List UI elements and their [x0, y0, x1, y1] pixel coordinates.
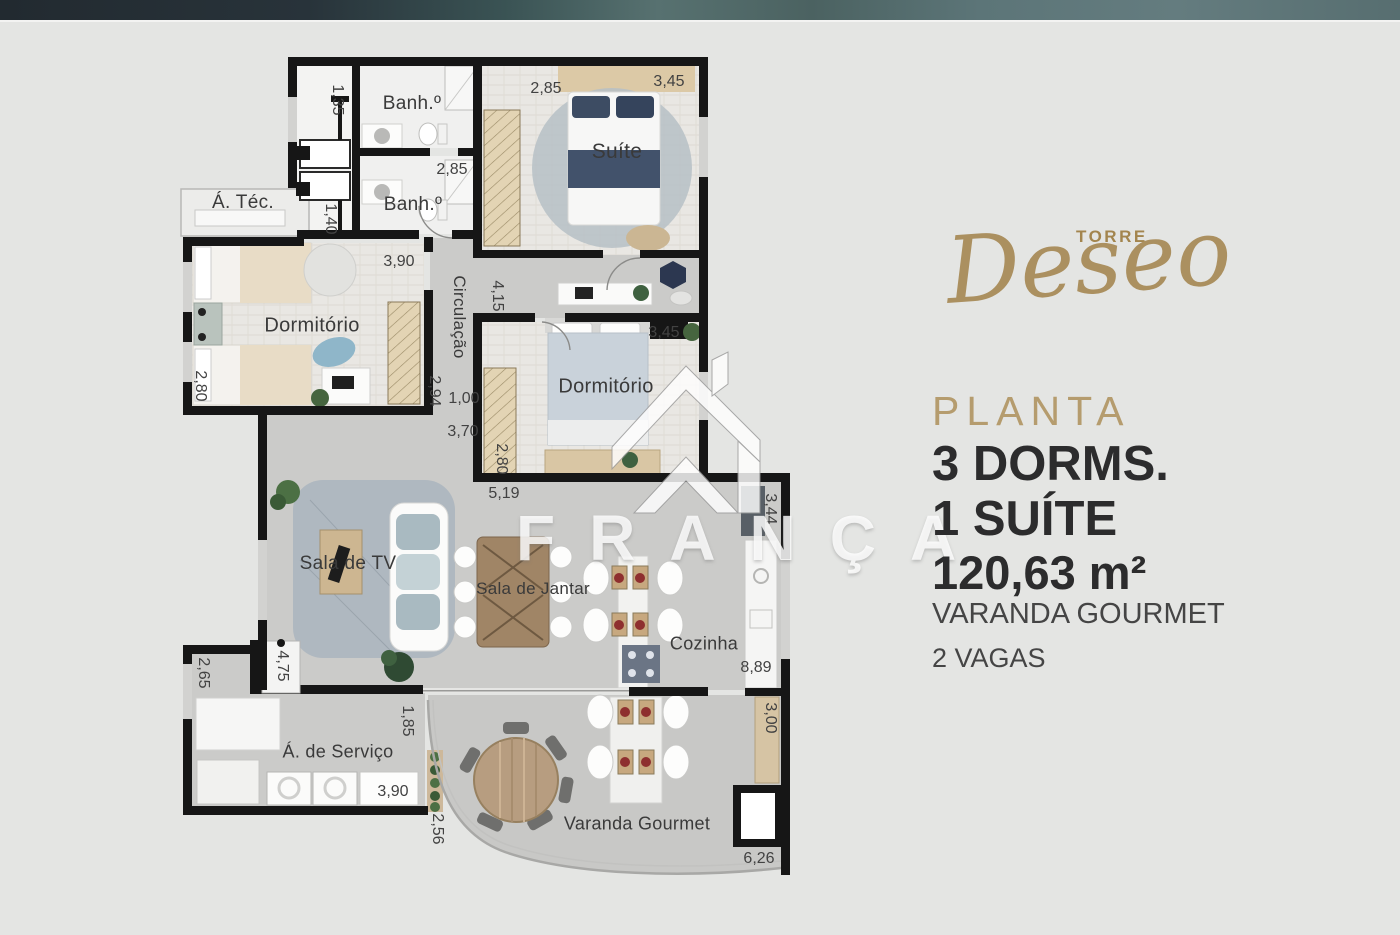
- spec-suite: 1 SUÍTE: [932, 491, 1117, 547]
- laundry-cabinet: [197, 760, 259, 804]
- spec-area: 120,63 m²: [932, 545, 1146, 600]
- dorm1-nightstand: [194, 303, 222, 345]
- dorm1-rug: [304, 244, 356, 296]
- watermark-text: FRANÇA: [516, 501, 990, 575]
- suite-headboard: [558, 62, 695, 92]
- floor-plan: [0, 0, 1400, 930]
- tower-name-script: Deseo: [943, 206, 1234, 318]
- dorm2-desk: [545, 450, 660, 476]
- spec-dorms: 3 DORMS.: [932, 436, 1169, 492]
- dorm2-tv: [650, 322, 688, 339]
- feature-vagas: 2 VAGAS: [932, 643, 1046, 674]
- varanda-counter: [755, 697, 779, 783]
- suite-wardrobe: [484, 110, 520, 246]
- feature-varanda-gourmet: VARANDA GOURMET: [932, 598, 1225, 631]
- plan-section-label: PLANTA: [932, 388, 1130, 435]
- cooktop: [622, 645, 660, 683]
- suite-bench: [626, 225, 670, 251]
- floor-plan-svg: [0, 0, 1400, 930]
- dorm2-wardrobe: [484, 368, 516, 476]
- flyer-canvas: Banh.ºSuíteBanh.ºÁ. Téc.CirculaçãoDormit…: [0, 0, 1400, 930]
- dorm1-wardrobe: [388, 302, 420, 404]
- laundry-table: [196, 698, 280, 750]
